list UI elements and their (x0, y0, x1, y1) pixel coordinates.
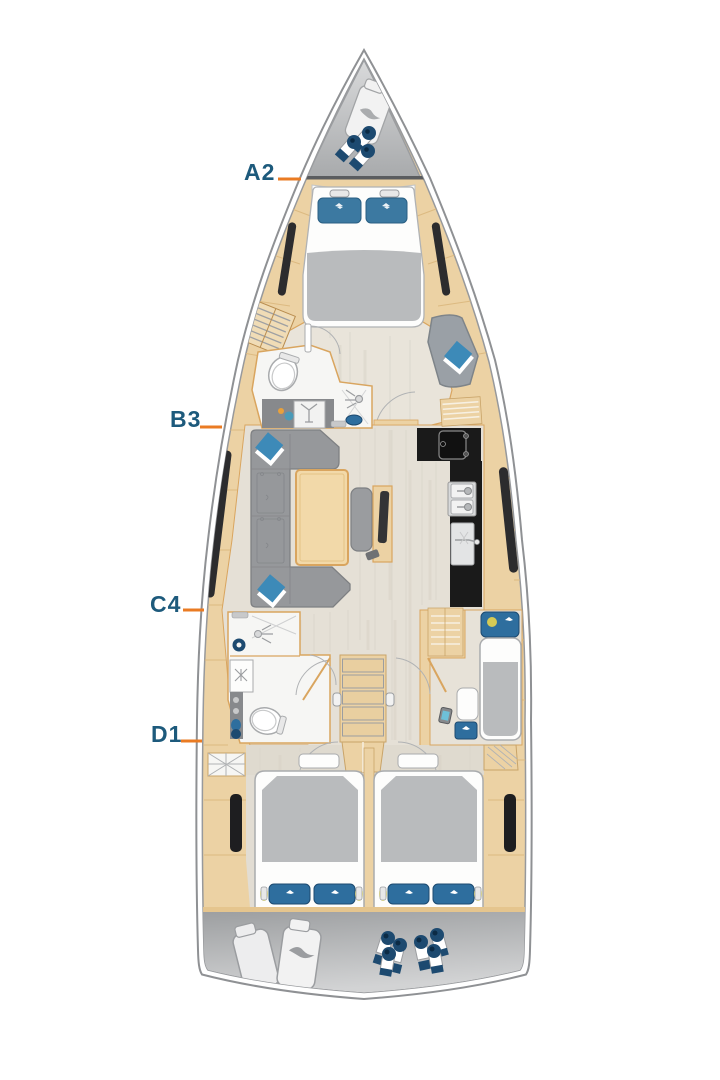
svg-text:C4: C4 (150, 591, 181, 617)
svg-text:B3: B3 (170, 406, 201, 432)
svg-text:A2: A2 (244, 159, 275, 185)
svg-text:D1: D1 (151, 721, 182, 747)
